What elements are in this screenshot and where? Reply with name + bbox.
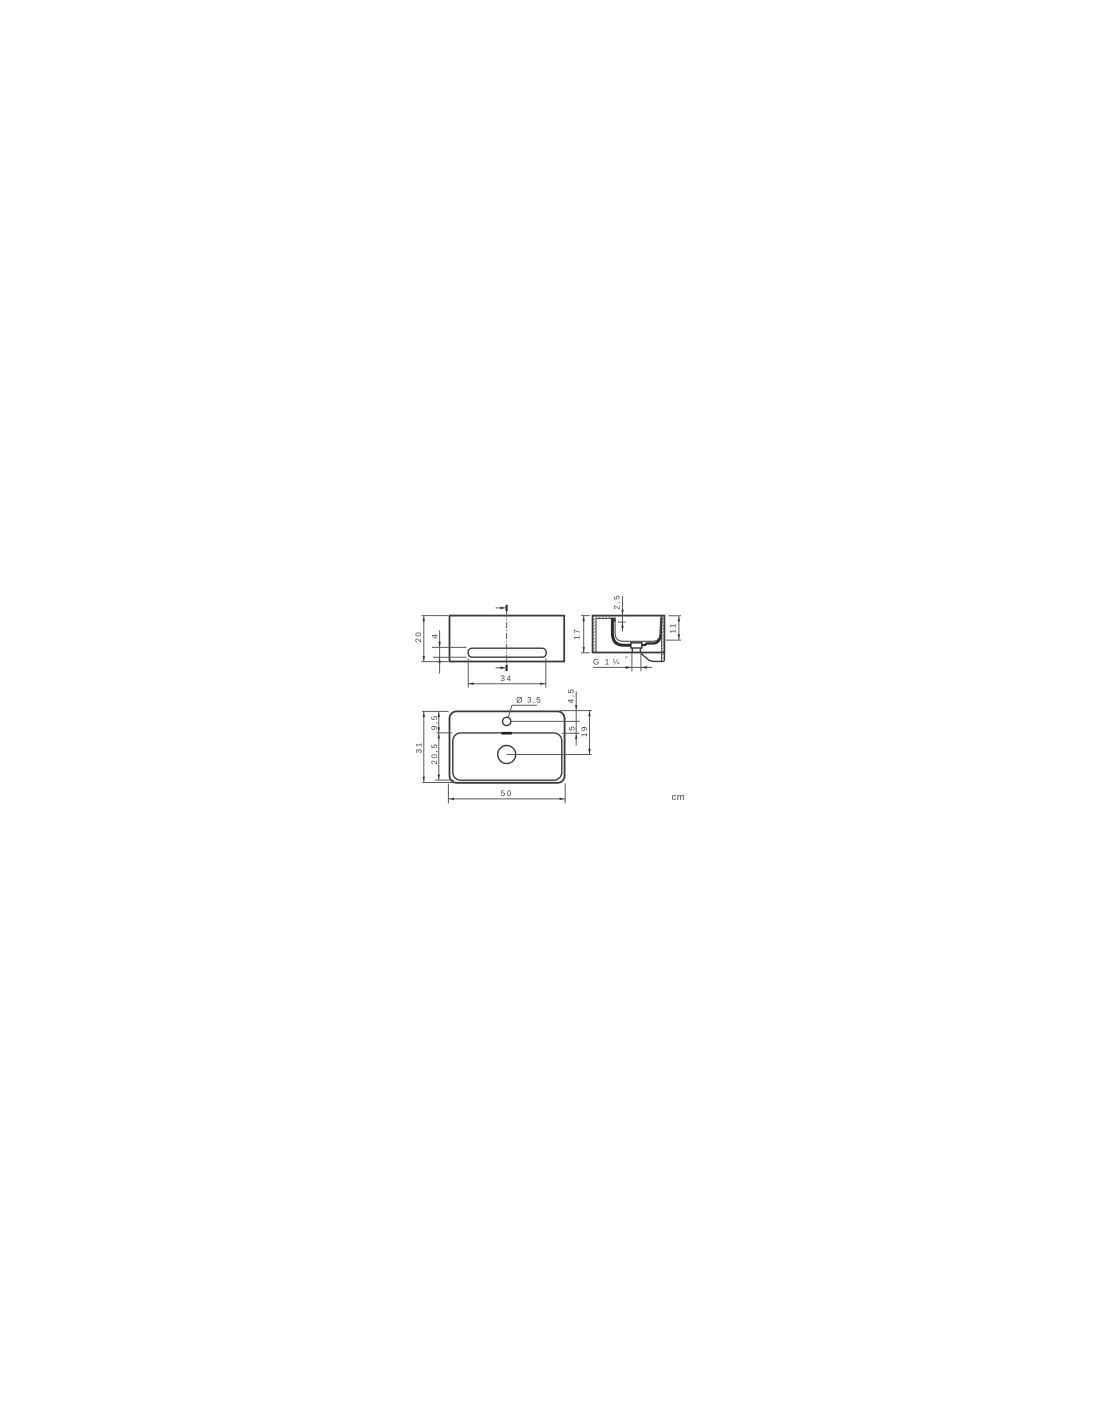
svg-text:cm: cm — [672, 792, 686, 803]
svg-text:1: 1 — [605, 658, 610, 667]
svg-text:19: 19 — [580, 725, 589, 737]
svg-text:2,5: 2,5 — [613, 594, 622, 610]
svg-text:50: 50 — [501, 789, 513, 798]
svg-text:20: 20 — [414, 631, 423, 643]
svg-text:4,5: 4,5 — [567, 687, 576, 703]
svg-text:5: 5 — [568, 725, 577, 731]
svg-text:31: 31 — [414, 741, 423, 753]
svg-text:¼: ¼ — [613, 658, 620, 667]
svg-text:Ø 3,5: Ø 3,5 — [516, 696, 542, 705]
svg-text:34: 34 — [501, 674, 513, 683]
svg-text:17: 17 — [572, 628, 581, 640]
svg-text:″: ″ — [625, 655, 628, 664]
svg-text:9,5: 9,5 — [430, 714, 439, 730]
svg-text:4: 4 — [430, 633, 439, 639]
svg-text:11: 11 — [668, 622, 677, 634]
svg-text:20,5: 20,5 — [430, 743, 439, 765]
svg-text:G: G — [593, 658, 599, 667]
